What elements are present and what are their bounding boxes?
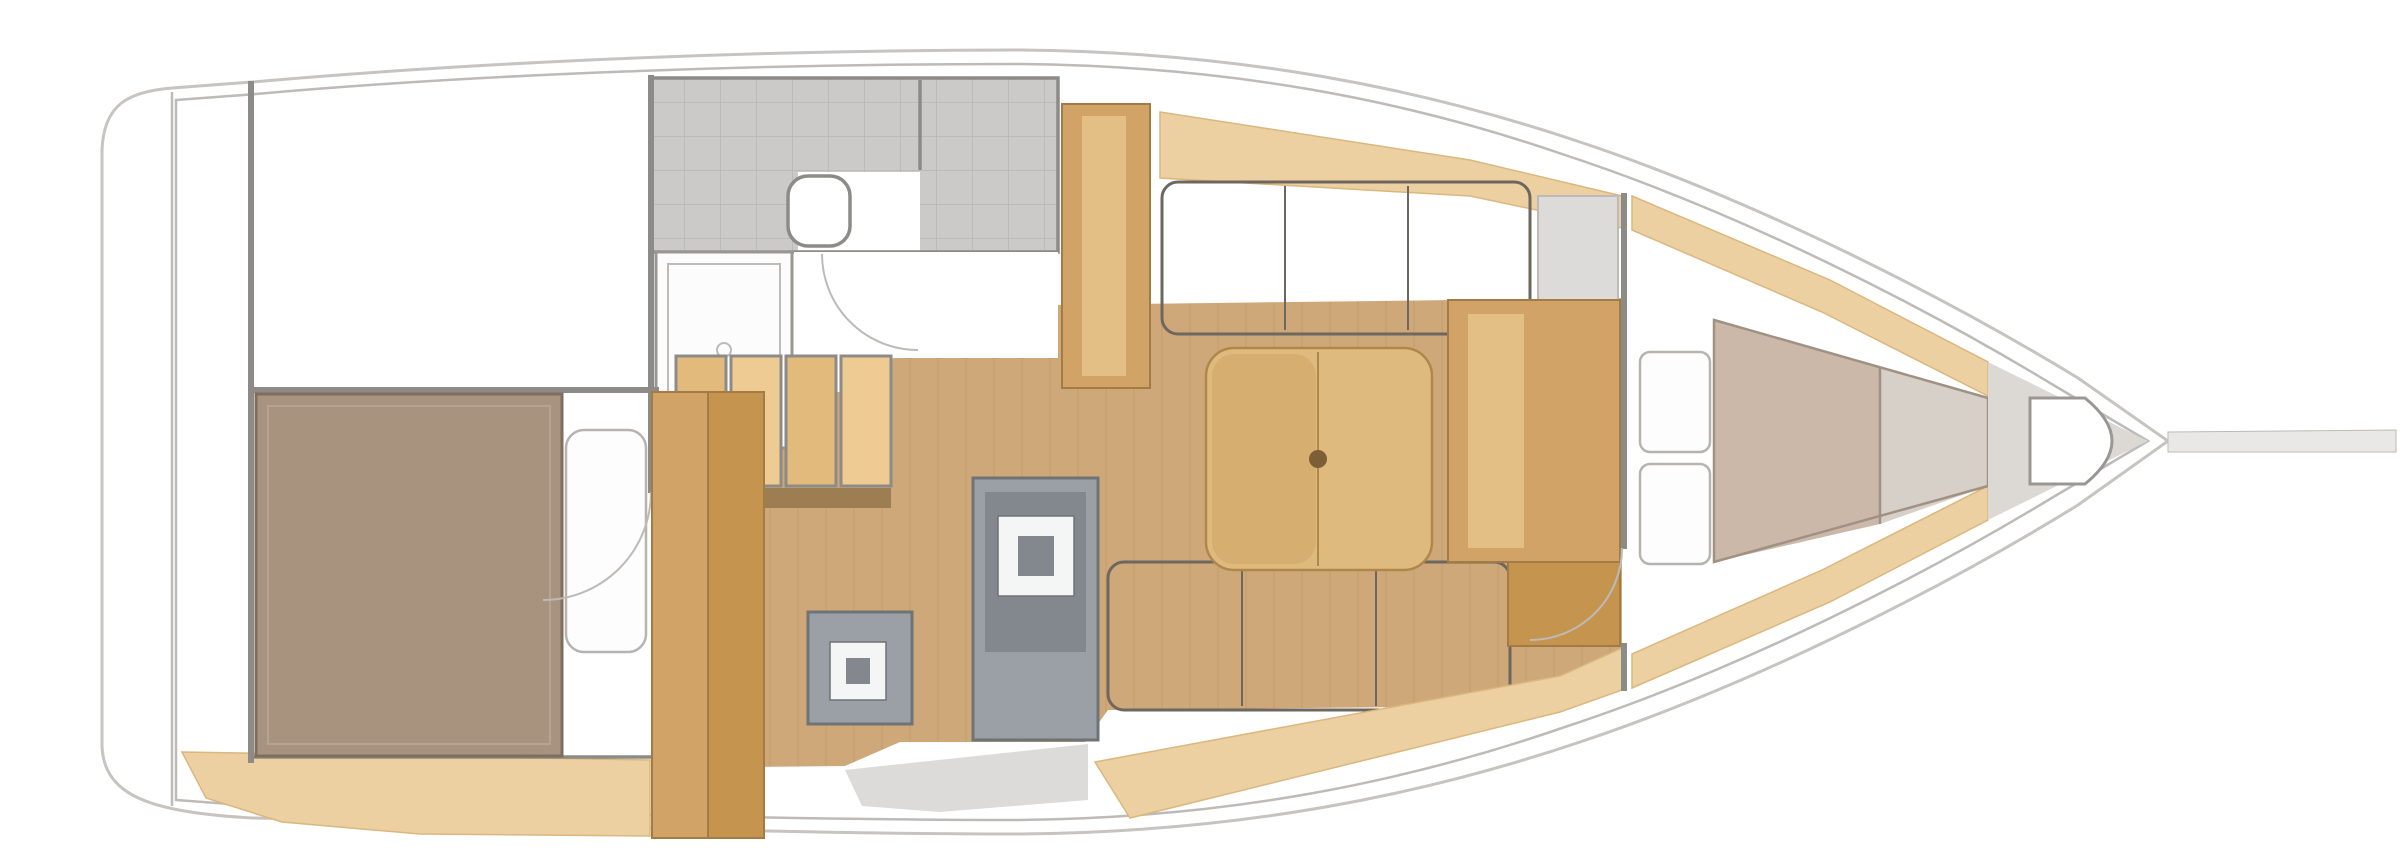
- v-berth-pillow: [1640, 352, 1710, 452]
- bowsprit: [2168, 430, 2396, 452]
- stove-window: [1018, 536, 1054, 576]
- table-leaf: [1212, 354, 1316, 564]
- aft-hull-shelf: [182, 752, 650, 836]
- forward-locker-seat: [1538, 196, 1618, 316]
- aft-berth: [256, 394, 562, 756]
- wardrobe-panel: [652, 392, 708, 838]
- floorplan-canvas: [0, 0, 2400, 867]
- nav-cabinet-door: [1468, 314, 1524, 548]
- aft-pillow: [566, 430, 646, 652]
- v-berth-pillow: [1640, 464, 1710, 564]
- sailboat-floorplan-svg: [0, 0, 2400, 867]
- head-floor: [794, 252, 1058, 358]
- step-tread: [841, 356, 891, 486]
- toilet: [788, 176, 850, 246]
- step-tread: [786, 356, 836, 486]
- midship-cabinet: [1062, 104, 1150, 388]
- mast-post: [1309, 450, 1327, 468]
- cabinet-door: [1082, 116, 1126, 376]
- wardrobe-panel: [708, 392, 764, 838]
- anchor-locker: [2030, 398, 2112, 484]
- sink-drain: [846, 658, 870, 684]
